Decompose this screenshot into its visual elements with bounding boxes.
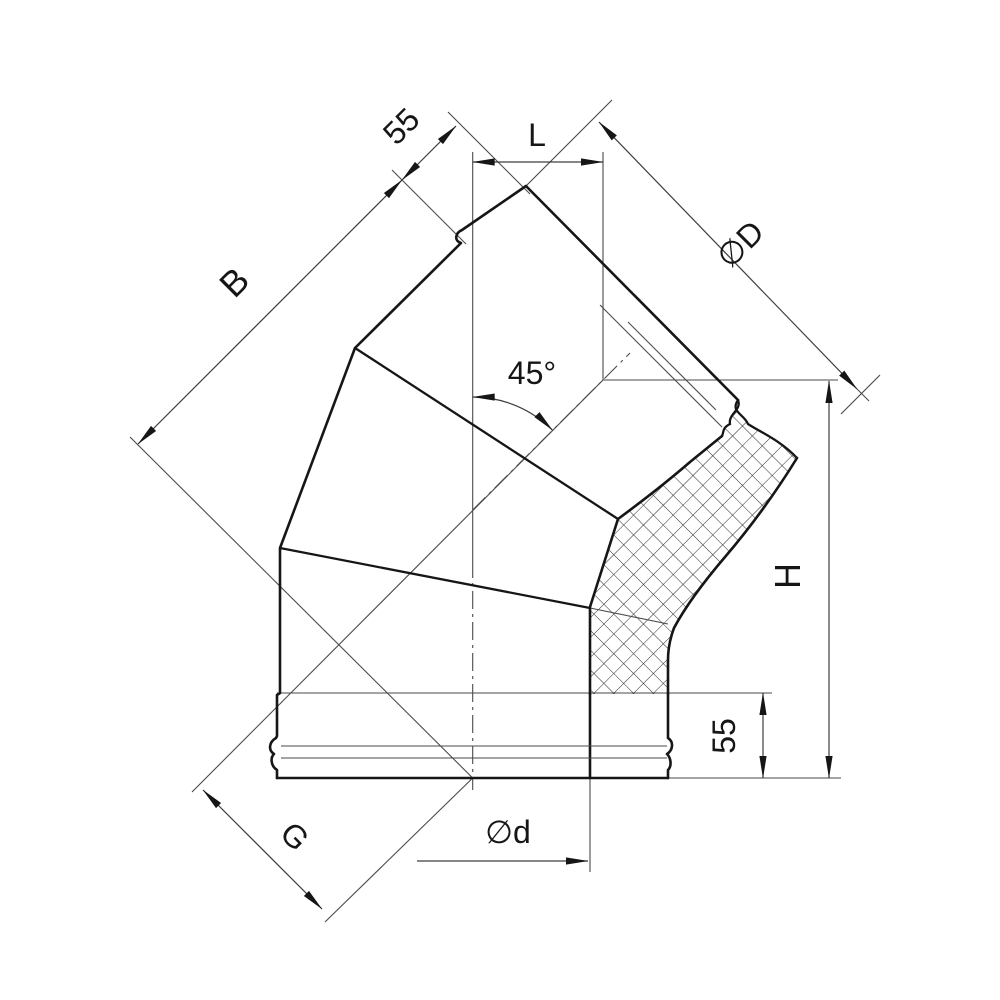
dim-label-height: H	[767, 563, 808, 589]
dim-label-outer-diameter: ∅D	[709, 213, 771, 275]
elbow-45-drawing: B 55 L ∅D 45° H 55 G ∅d	[0, 0, 1000, 1000]
dimension-G: G	[203, 790, 322, 909]
dimension-socket-bottom-55: 55	[706, 693, 763, 778]
dim-label-socket-top: 55	[376, 101, 427, 152]
dim-label-l: L	[528, 117, 546, 153]
construction-lines	[130, 100, 880, 922]
joint-upper	[355, 348, 618, 519]
technical-drawing: B 55 L ∅D 45° H 55 G ∅d	[0, 0, 1000, 1000]
dim-label-b: B	[211, 259, 257, 305]
dimension-L: L	[473, 117, 603, 162]
dim-label-g: G	[273, 815, 316, 858]
dimension-socket-top-55: 55	[376, 101, 456, 180]
dim-label-inner-diameter: ∅d	[485, 814, 531, 850]
dimension-B: B	[138, 180, 402, 444]
dim-label-angle: 45°	[508, 355, 556, 391]
insulation-hatch	[590, 400, 797, 694]
dimension-inner-diameter: ∅d	[417, 814, 588, 861]
dimension-outer-diameter: ∅D	[599, 122, 857, 389]
joint-lower	[280, 548, 590, 608]
dimension-angle-45: 45°	[473, 355, 556, 430]
dim-label-socket-bottom: 55	[706, 718, 742, 754]
